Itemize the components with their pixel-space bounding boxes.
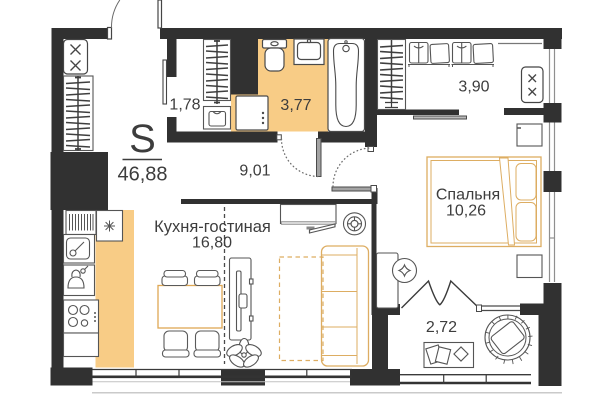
svg-text:S: S — [129, 117, 156, 161]
svg-text:Спальня: Спальня — [436, 187, 500, 204]
svg-text:1,78: 1,78 — [169, 97, 200, 114]
svg-text:3,77: 3,77 — [280, 97, 311, 114]
svg-text:10,26: 10,26 — [446, 203, 486, 220]
svg-text:Кухня-гостиная: Кухня-гостиная — [154, 218, 271, 236]
svg-text:3,90: 3,90 — [458, 79, 489, 96]
svg-text:46,88: 46,88 — [117, 164, 167, 186]
svg-text:16,80: 16,80 — [192, 235, 232, 252]
svg-text:9,01: 9,01 — [239, 163, 270, 180]
svg-text:2,72: 2,72 — [426, 319, 457, 336]
